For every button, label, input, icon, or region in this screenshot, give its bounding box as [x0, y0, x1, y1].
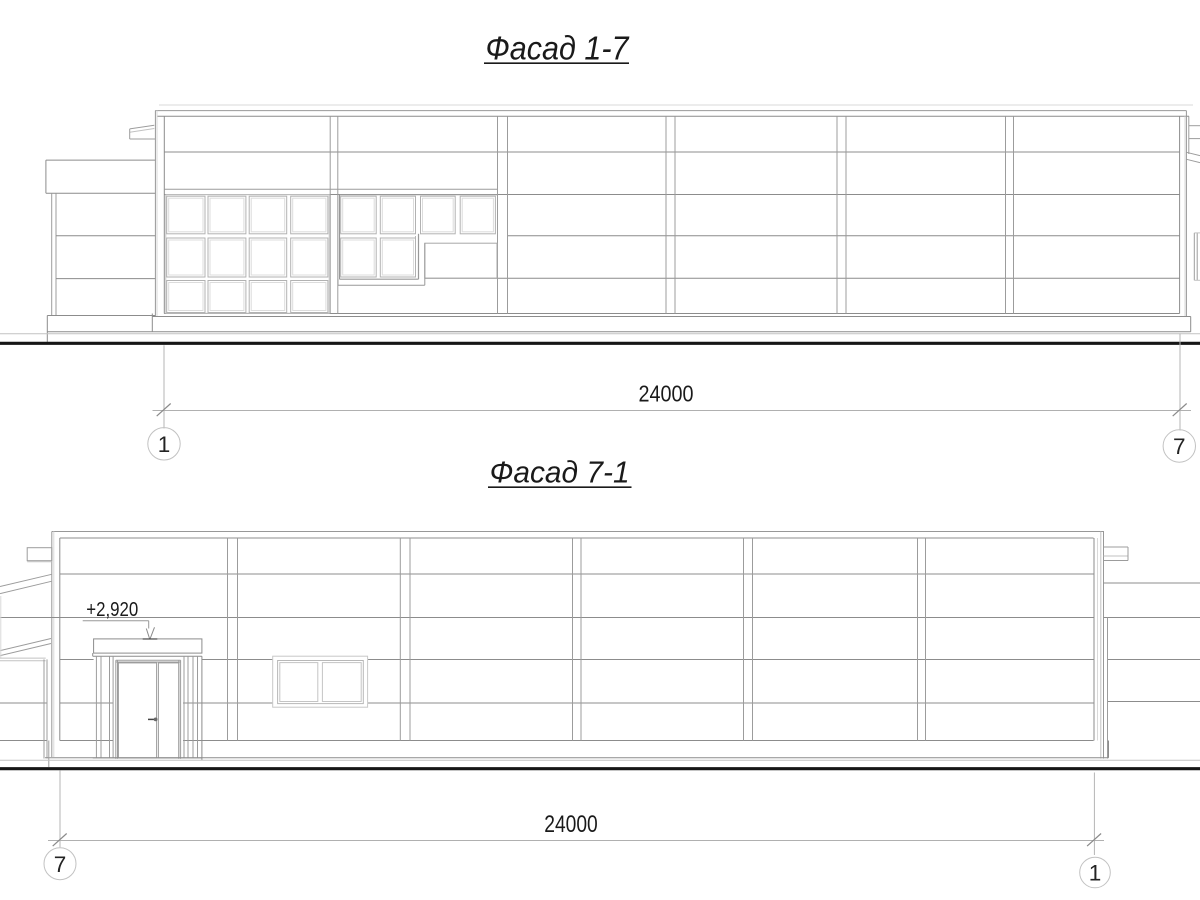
svg-text:+2,920: +2,920	[86, 598, 138, 621]
svg-text:1: 1	[158, 432, 171, 457]
svg-text:7: 7	[54, 852, 67, 877]
svg-text:Фасад 1-7: Фасад 1-7	[486, 30, 631, 67]
svg-text:24000: 24000	[639, 381, 694, 407]
svg-text:24000: 24000	[544, 811, 598, 838]
svg-text:Фасад 7-1: Фасад 7-1	[490, 455, 630, 490]
svg-text:1: 1	[1089, 861, 1102, 886]
svg-text:7: 7	[1173, 434, 1186, 459]
